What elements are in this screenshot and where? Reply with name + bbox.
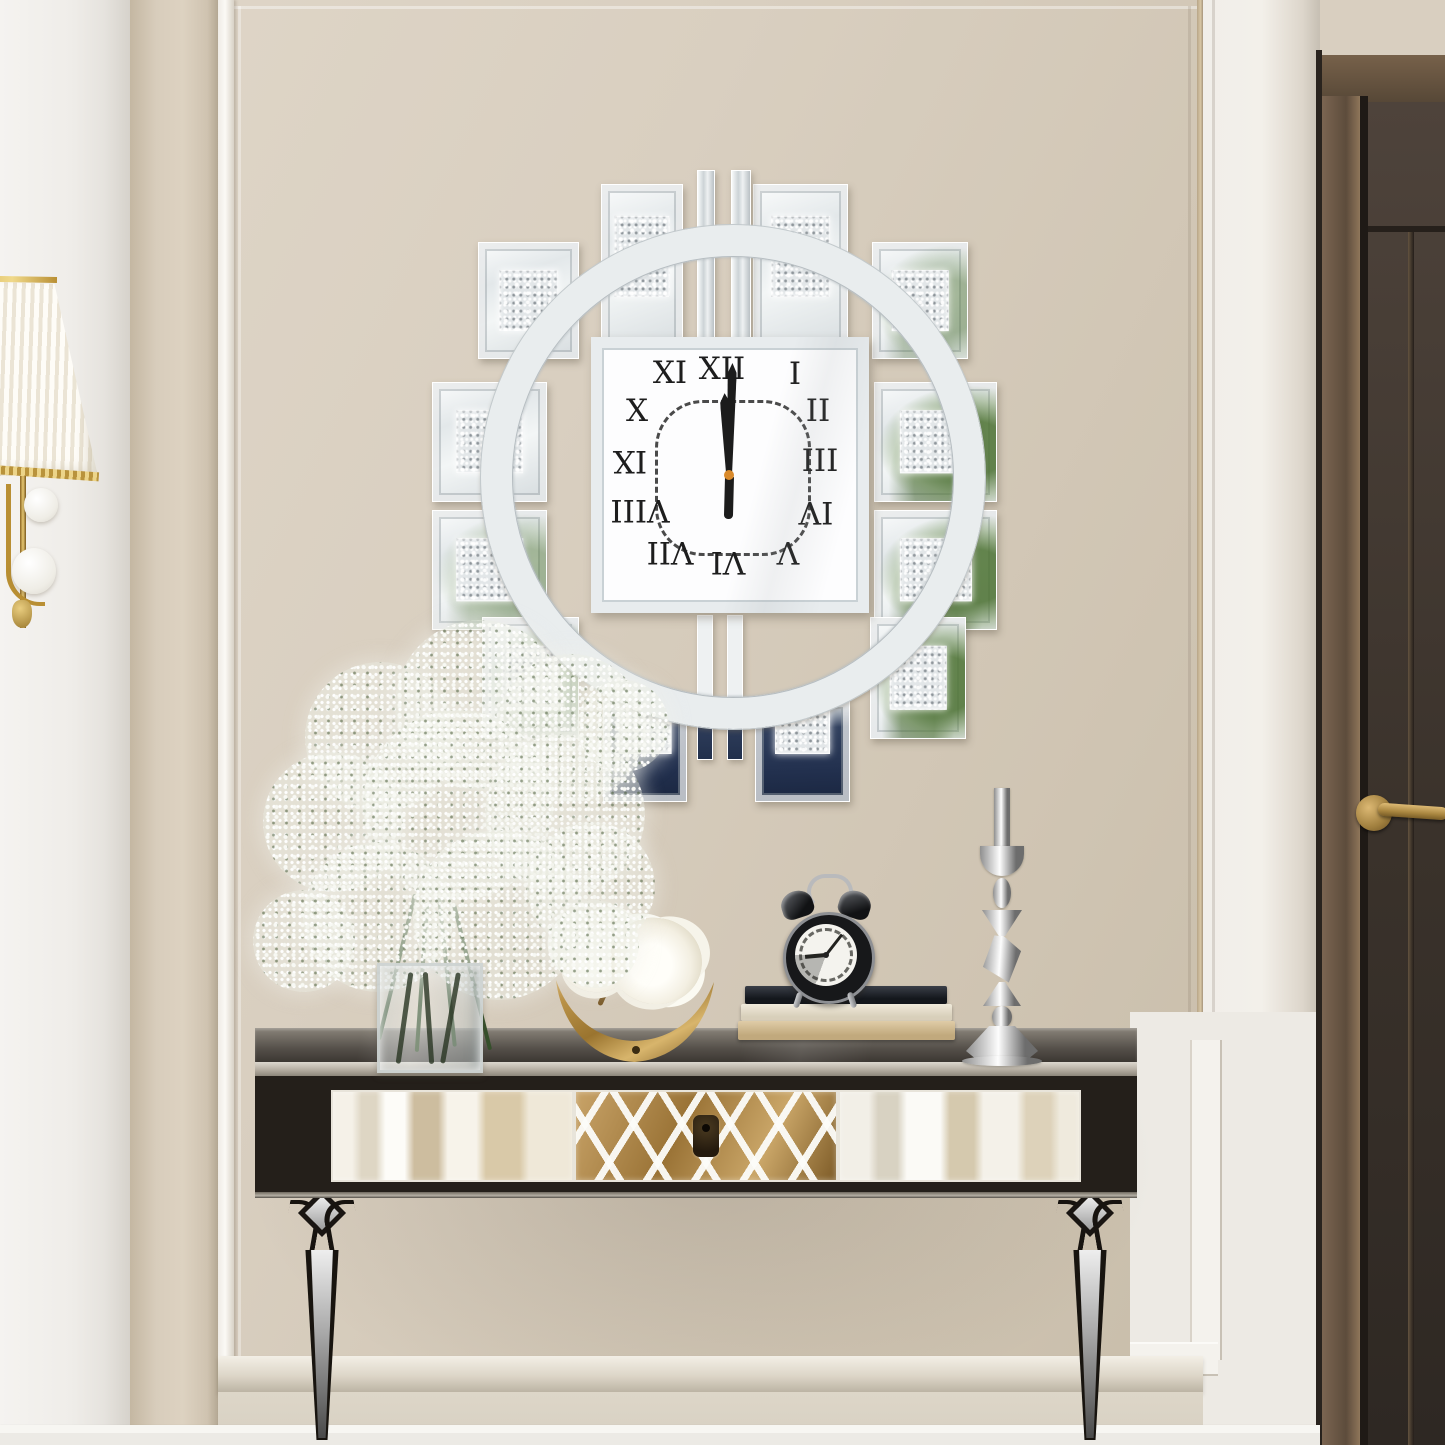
door-panel-groove-horizontal: [1368, 226, 1445, 232]
wall-panel-top-molding: [234, 6, 1197, 9]
vase-stem: [396, 972, 414, 1064]
alarm-clock: [779, 876, 873, 1008]
left-white-wall: [0, 0, 130, 1445]
glass-vase: [377, 963, 483, 1073]
candlestick-bead: [993, 878, 1011, 908]
candlestick-nozzle: [994, 788, 1010, 846]
alarm-body: [783, 912, 875, 1004]
drawer-front-lattice: [574, 1090, 838, 1182]
candlestick-cone: [982, 910, 1022, 936]
book: [738, 1021, 955, 1040]
flower-puff: [577, 680, 669, 772]
alarm-leg: [793, 991, 804, 1008]
flower-puff: [253, 890, 355, 992]
lamp-shade-gold-trim-top: [0, 275, 57, 283]
table-leg: [278, 1192, 366, 1444]
candlestick-twist: [979, 935, 1024, 984]
lamp-glass-globe: [24, 488, 58, 522]
left-beige-pilaster: [130, 0, 218, 1445]
table-leg: [1046, 1192, 1134, 1444]
door-casing-top: [1322, 55, 1445, 102]
drawer-keyhole-pull: [693, 1115, 719, 1157]
door-casing-side: [1322, 96, 1362, 1445]
lamp-glass-globe: [12, 548, 56, 594]
vase-stem: [440, 972, 461, 1063]
floor-lamp: [0, 262, 120, 692]
babys-breath-bouquet: [245, 592, 675, 1022]
left-white-trim: [218, 0, 234, 1445]
door: [1368, 102, 1445, 1445]
apron-mirror-panel: [331, 1090, 574, 1182]
alarm-face: [795, 924, 857, 986]
candlestick-foot: [962, 1056, 1042, 1066]
flower-puff: [551, 900, 639, 988]
candlestick-ball: [992, 1006, 1012, 1028]
alarm-face-shadow: [795, 924, 857, 986]
door-inner-shadow-line: [1360, 96, 1368, 1445]
candlestick-cone: [983, 982, 1021, 1006]
wainscot-molding-vertical: [1190, 1040, 1222, 1360]
silver-candlestick: [960, 788, 1044, 1072]
lamp-shade: [0, 280, 97, 478]
vase-stem: [423, 972, 434, 1064]
candlestick-base: [966, 1026, 1038, 1058]
lamp-gold-finial: [12, 600, 32, 628]
candlestick-cup: [980, 846, 1024, 876]
apron-mirror-panel: [838, 1090, 1081, 1182]
hallway-scene: XII I II III IV V VI VII VIII IX X XI: [0, 0, 1445, 1445]
door-panel-groove-vertical: [1408, 232, 1414, 1445]
